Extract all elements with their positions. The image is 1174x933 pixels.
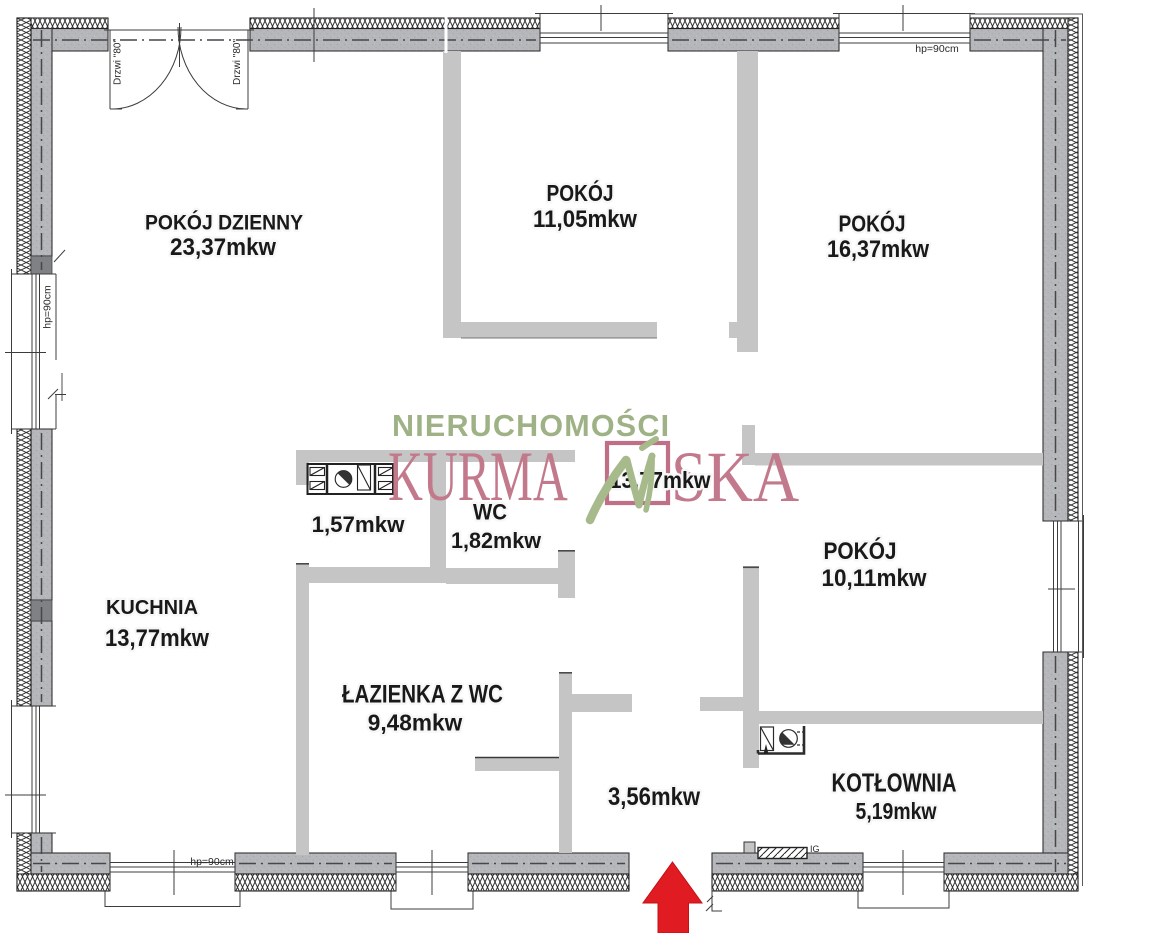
svg-text:13,77mkw: 13,77mkw (105, 624, 209, 651)
svg-text:Drzwi "80": Drzwi "80" (232, 39, 243, 85)
svg-text:11,05mkw: 11,05mkw (533, 205, 638, 232)
svg-text:hp=90cm: hp=90cm (42, 285, 54, 329)
svg-text:ŁAZIENKA Z WC: ŁAZIENKA Z WC (342, 680, 503, 708)
svg-text:hp=90cm: hp=90cm (190, 856, 234, 868)
svg-text:POKÓJ: POKÓJ (823, 538, 896, 565)
svg-text:KUCHNIA: KUCHNIA (106, 597, 198, 619)
svg-text:POKÓJ: POKÓJ (547, 179, 614, 206)
svg-text:16,37mkw: 16,37mkw (827, 235, 929, 262)
svg-text:POKÓJ: POKÓJ (839, 210, 906, 237)
svg-text:10,11mkw: 10,11mkw (821, 564, 927, 591)
svg-text:KOTŁOWNIA: KOTŁOWNIA (832, 768, 957, 797)
svg-text:1,82mkw: 1,82mkw (451, 528, 542, 554)
svg-text:KURMA: KURMA (388, 438, 568, 516)
svg-text:POKÓJ DZIENNY: POKÓJ DZIENNY (145, 210, 303, 235)
svg-text:23,37mkw: 23,37mkw (170, 233, 277, 260)
svg-text:5,19mkw: 5,19mkw (856, 798, 937, 824)
svg-text:13,77mkw: 13,77mkw (610, 467, 711, 493)
svg-text:9,48mkw: 9,48mkw (368, 709, 463, 735)
svg-text:Drzwi "80": Drzwi "80" (113, 39, 124, 85)
svg-text:IG: IG (810, 844, 820, 854)
svg-text:3,56mkw: 3,56mkw (608, 783, 701, 811)
svg-text:hp=90cm: hp=90cm (915, 43, 959, 55)
